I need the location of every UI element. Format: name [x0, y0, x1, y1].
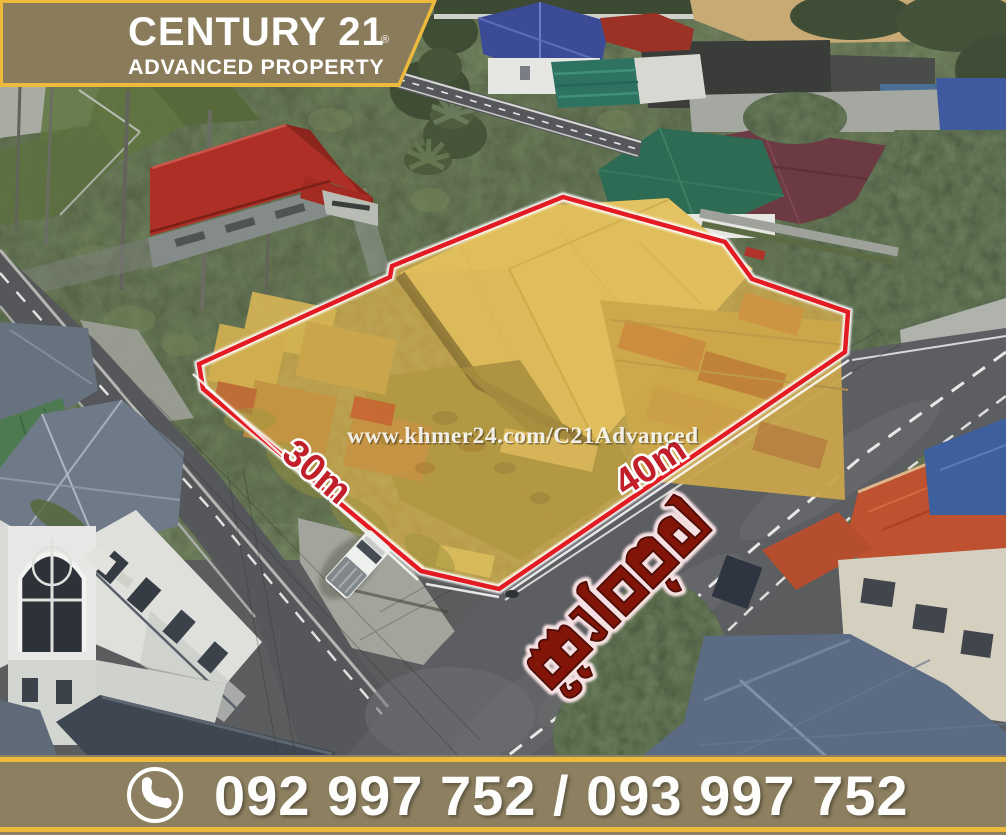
svg-text:CENTURY 21: CENTURY 21	[128, 10, 385, 54]
svg-text:092 997 752 / 093 997 752: 092 997 752 / 093 997 752	[214, 764, 909, 827]
svg-text:ADVANCED PROPERTY: ADVANCED PROPERTY	[128, 55, 384, 79]
svg-text:www.khmer24.com/C21Advanced: www.khmer24.com/C21Advanced	[347, 423, 699, 449]
svg-text:®: ®	[381, 34, 389, 46]
